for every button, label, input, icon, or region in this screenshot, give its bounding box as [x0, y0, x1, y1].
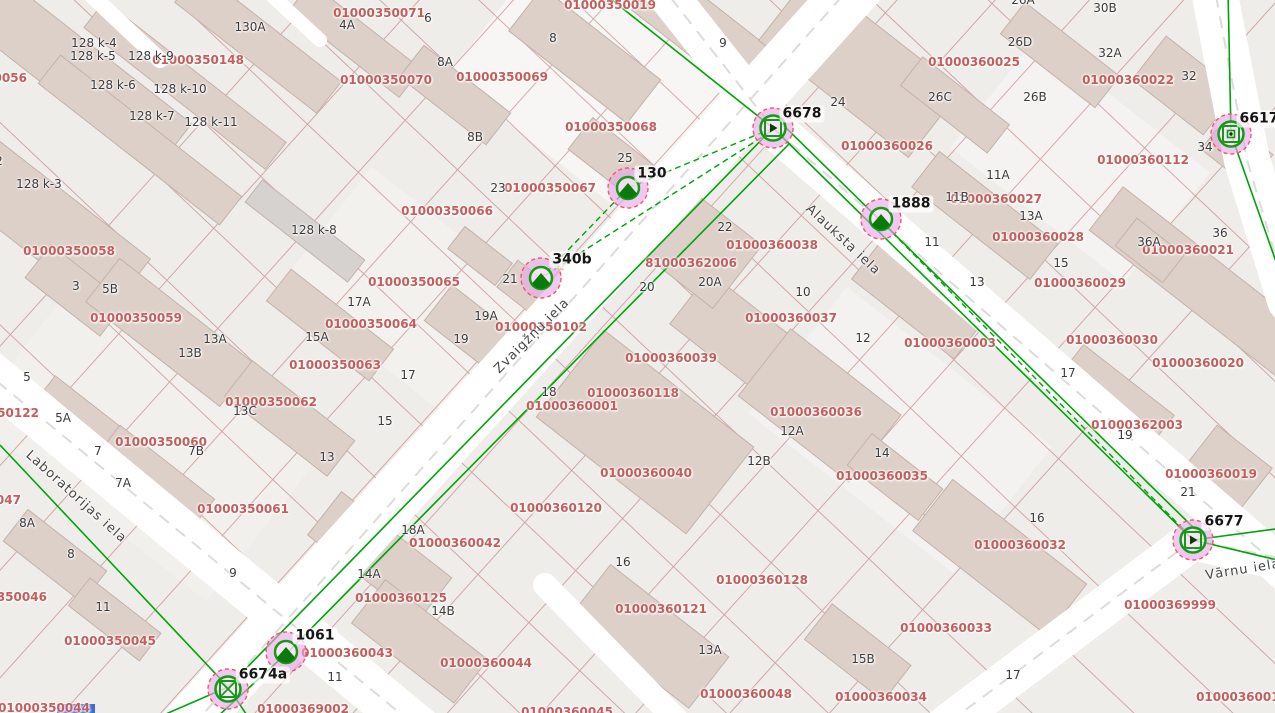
- marker-label[interactable]: 1061: [293, 628, 338, 645]
- marker-label[interactable]: 6677: [1202, 514, 1247, 531]
- marker-label[interactable]: 340b: [549, 252, 594, 269]
- marker-label[interactable]: 6617: [1237, 111, 1275, 128]
- map-canvas[interactable]: 0100035007101000350019010003501480100036…: [0, 0, 1275, 713]
- marker-label[interactable]: 1888: [889, 196, 934, 213]
- marker-label[interactable]: 130: [634, 166, 669, 183]
- marker-layer: 66786617130340b188810616674a6677: [0, 0, 1275, 713]
- marker-label[interactable]: 6678: [780, 106, 825, 123]
- marker-label[interactable]: 6674a: [236, 667, 290, 684]
